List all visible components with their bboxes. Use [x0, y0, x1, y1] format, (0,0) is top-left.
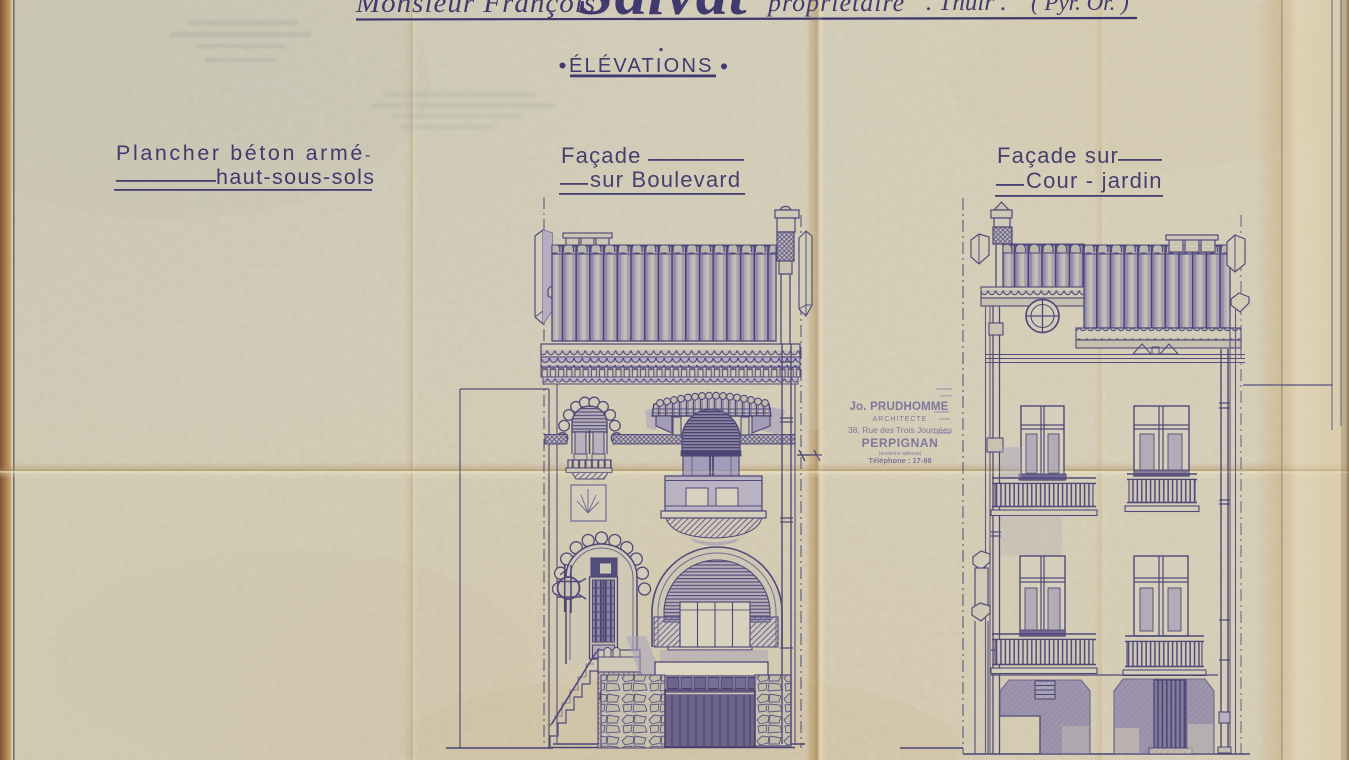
svg-text:ARCHITECTE: ARCHITECTE — [873, 416, 928, 423]
svg-text:Façade: Façade — [561, 143, 642, 168]
svg-text:Monsieur François: Monsieur François — [355, 0, 596, 19]
svg-text:PERPIGNAN: PERPIGNAN — [862, 436, 939, 450]
svg-text:Plancher béton armé-: Plancher béton armé- — [116, 141, 373, 165]
svg-text:Jo. PRUDHOMME: Jo. PRUDHOMME — [849, 401, 948, 413]
svg-text:( Pyr. Or. ): ( Pyr. Or. ) — [1031, 0, 1129, 15]
svg-text:propriétaire: propriétaire — [766, 0, 905, 17]
svg-text:Salvat: Salvat — [578, 0, 749, 28]
svg-text:Téléphone : 17-98: Téléphone : 17-98 — [868, 456, 931, 465]
svg-text:38, Rue des Trois Journées: 38, Rue des Trois Journées — [848, 425, 952, 435]
svg-text:sur Boulevard: sur Boulevard — [590, 167, 741, 192]
svg-text:. Thuir .: . Thuir . — [926, 0, 1007, 16]
svg-text:haut-sous-sols: haut-sous-sols — [216, 165, 375, 189]
svg-text:Façade sur: Façade sur — [997, 143, 1119, 168]
svg-text:Cour - jardin: Cour - jardin — [1026, 168, 1163, 193]
svg-text:ÉLÉVATIONS: ÉLÉVATIONS — [569, 54, 714, 77]
